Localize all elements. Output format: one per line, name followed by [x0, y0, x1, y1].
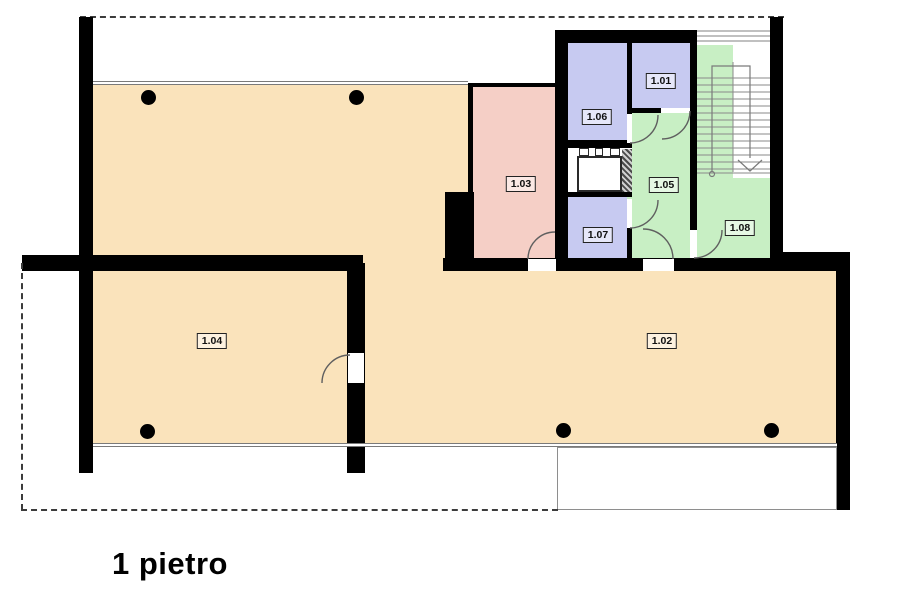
door-opening-108: [690, 230, 697, 258]
door-opening-104: [348, 353, 364, 383]
wall-core-top: [555, 30, 697, 43]
wall-right-corner: [770, 252, 836, 271]
floor-title: 1 pietro: [112, 546, 228, 582]
door-opening-105: [643, 259, 674, 271]
column-dot: [141, 90, 156, 105]
stair-landing-lines: [697, 31, 770, 41]
wall-pillar: [445, 192, 474, 262]
room-label-1-05: 1.05: [649, 177, 679, 193]
wall-core-left: [555, 30, 568, 271]
room-label-1-01: 1.01: [646, 73, 676, 89]
room-1-04: [93, 271, 347, 443]
wall-elevator-bottom: [568, 192, 632, 197]
wall-right-exterior: [836, 252, 850, 510]
column-dot: [140, 424, 155, 439]
roof-dashed-line: [80, 16, 784, 18]
door-opening-106: [627, 114, 632, 143]
wall-room103-left: [468, 87, 473, 193]
room-label-1-07: 1.07: [583, 227, 613, 243]
elevator-car: [577, 156, 622, 192]
room-label-1-08: 1.08: [725, 220, 755, 236]
column-dot: [349, 90, 364, 105]
wall-room104-top: [79, 255, 363, 271]
column-dot: [764, 423, 779, 438]
elevator-guide-tab: [610, 148, 620, 156]
wall-left-exterior: [79, 17, 93, 473]
terrace-dashed-bottom: [21, 509, 558, 511]
wall-elevator-top: [568, 140, 632, 148]
door-opening-107: [627, 199, 632, 228]
elevator-guide-tab: [579, 148, 589, 156]
room-1-02-upper-area: [93, 85, 468, 258]
wall-core-right: [690, 30, 697, 230]
room-1-02-connector: [363, 255, 443, 271]
elevator-guide-tab: [595, 148, 603, 156]
room-label-1-03: 1.03: [506, 176, 536, 192]
door-opening-103: [528, 259, 556, 271]
wall-106-101-divider: [627, 43, 632, 115]
floor-plan: 1.01 1.02 1.03 1.04 1.05 1.06 1.07 1.08 …: [0, 0, 900, 600]
room-1-02: [365, 271, 837, 443]
column-dot: [556, 423, 571, 438]
wall-wing-stub: [22, 255, 79, 271]
room-label-1-06: 1.06: [582, 109, 612, 125]
elevator-door-hatch: [622, 149, 632, 192]
room-label-1-04: 1.04: [197, 333, 227, 349]
balcony-outline: [557, 447, 837, 510]
wall-107-right: [627, 228, 632, 258]
door-opening-101: [661, 108, 690, 113]
terrace-dashed-left: [21, 263, 23, 510]
window-band-top: [93, 81, 468, 85]
wall-101-bottom: [632, 108, 662, 113]
stair-upper-flight-void: [733, 45, 770, 178]
room-label-1-02: 1.02: [647, 333, 677, 349]
wall-stair-right: [770, 17, 783, 252]
room-1-06: [568, 43, 627, 140]
wall-room103-top: [468, 83, 555, 87]
room-1-03: [473, 87, 555, 258]
